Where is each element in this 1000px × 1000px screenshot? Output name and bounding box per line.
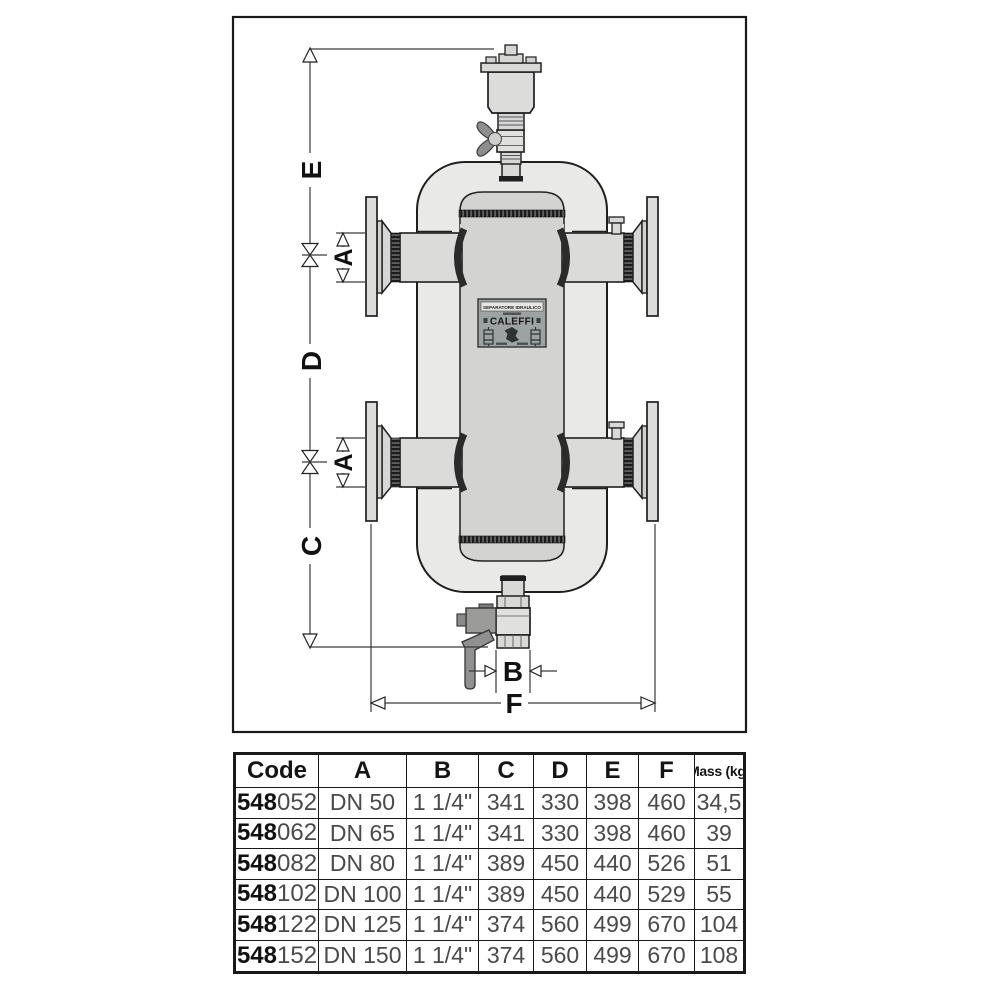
value-cell: 670 (639, 941, 695, 972)
spec-table: Code A B C D E F Mass (kg) 548052 DN 50 … (233, 752, 746, 974)
value-cell: DN 125 (319, 910, 407, 941)
value-cell: 374 (479, 910, 534, 941)
code-suffix: 052 (277, 789, 317, 817)
value-cell: 51 (695, 849, 743, 880)
value-cell: 526 (639, 849, 695, 880)
value-cell: 1 1/4" (407, 880, 479, 911)
nozzle-pipe (400, 438, 462, 487)
separator-vessel (417, 162, 607, 592)
drain-weld-band (500, 576, 526, 581)
value-cell: 670 (639, 910, 695, 941)
dim-label-B: B (503, 656, 523, 687)
nozzle-cone (382, 221, 391, 293)
vent-stem (505, 45, 517, 55)
col-header-d: D (534, 755, 587, 788)
nozzle-pipe (562, 438, 624, 487)
col-header-f: F (639, 755, 695, 788)
nozzle-cone (382, 426, 391, 498)
col-header-code: Code (236, 755, 319, 788)
plate-subline (503, 313, 521, 315)
code-prefix: 548 (237, 942, 277, 970)
value-cell: 450 (534, 880, 587, 911)
code-suffix: 102 (277, 880, 317, 908)
dim-label-F: F (505, 688, 522, 719)
plug-fitting (609, 217, 624, 223)
vent-thread (498, 113, 524, 130)
drain-valve-body (496, 608, 530, 635)
value-cell: 104 (695, 910, 743, 941)
value-cell: 440 (587, 880, 639, 911)
flange-bolt-right (526, 57, 536, 63)
value-cell: 1 1/4" (407, 849, 479, 880)
value-cell: 389 (479, 880, 534, 911)
value-cell: DN 150 (319, 941, 407, 972)
code-suffix: 152 (277, 942, 317, 970)
value-cell: 398 (587, 819, 639, 850)
value-cell: 330 (534, 819, 587, 850)
value-cell: 39 (695, 819, 743, 850)
value-cell: DN 80 (319, 849, 407, 880)
code-suffix: 122 (277, 911, 317, 939)
value-cell: 108 (695, 941, 743, 972)
code-suffix: 082 (277, 850, 317, 878)
nozzle-weld-band (391, 233, 400, 282)
value-cell: 34,5 (695, 788, 743, 819)
code-prefix: 548 (237, 850, 277, 878)
code-cell: 548082 (236, 849, 319, 880)
plate-mark-left (484, 318, 488, 323)
tank-tube (460, 224, 564, 537)
dim-label-D: D (296, 351, 327, 371)
plug-fitting-body (612, 223, 621, 234)
dim-label-E: E (296, 161, 327, 180)
code-cell: 548122 (236, 910, 319, 941)
plate-brand: CALEFFI (490, 317, 534, 328)
col-header-a: A (319, 755, 407, 788)
value-cell: 560 (534, 910, 587, 941)
code-cell: 548052 (236, 788, 319, 819)
dim-label-C: C (296, 536, 327, 556)
value-cell: 398 (587, 788, 639, 819)
nozzle-pipe (400, 233, 462, 282)
value-cell: 389 (479, 849, 534, 880)
air-vent-body (488, 72, 534, 113)
col-header-b: B (407, 755, 479, 788)
weld-seam-bottom (459, 536, 565, 543)
value-cell: 460 (639, 819, 695, 850)
code-prefix: 548 (237, 880, 277, 908)
flange-plate (366, 197, 377, 316)
dim-label-A-lower: A (330, 453, 358, 471)
value-cell: 1 1/4" (407, 788, 479, 819)
handle-hub (489, 133, 502, 146)
mount-bolt (457, 614, 466, 626)
value-cell: 450 (534, 849, 587, 880)
code-suffix: 062 (277, 819, 317, 847)
nozzle-pipe (562, 233, 624, 282)
plug-fitting-body (612, 428, 621, 439)
nozzle-cone (633, 221, 642, 293)
nozzle-weld-band (624, 233, 633, 282)
code-prefix: 548 (237, 819, 277, 847)
plate-text-bar-right (517, 343, 528, 345)
value-cell: 374 (479, 941, 534, 972)
air-vent-flange (481, 63, 541, 72)
col-header-c: C (479, 755, 534, 788)
col-header-mass: Mass (kg) (695, 755, 743, 788)
col-header-e: E (587, 755, 639, 788)
value-cell: 330 (534, 788, 587, 819)
value-cell: 560 (534, 941, 587, 972)
flange-plate (647, 197, 658, 316)
lever-mount (466, 608, 496, 633)
value-cell: 499 (587, 941, 639, 972)
drain-hex-adapter (497, 596, 529, 608)
code-cell: 548102 (236, 880, 319, 911)
label-plate: SEPARATORE IDRAULICO CALEFFI (478, 299, 546, 347)
flange-plate (647, 402, 658, 521)
value-cell: DN 65 (319, 819, 407, 850)
value-cell: 341 (479, 819, 534, 850)
plate-title: SEPARATORE IDRAULICO (483, 305, 541, 310)
code-prefix: 548 (237, 789, 277, 817)
value-cell: DN 100 (319, 880, 407, 911)
value-cell: 499 (587, 910, 639, 941)
code-cell: 548062 (236, 819, 319, 850)
code-prefix: 548 (237, 911, 277, 939)
value-cell: 55 (695, 880, 743, 911)
dim-label-A-upper: A (330, 248, 358, 266)
code-cell: 548152 (236, 941, 319, 972)
value-cell: 460 (639, 788, 695, 819)
weld-seam-top (459, 210, 565, 217)
value-cell: 341 (479, 788, 534, 819)
nozzle-weld-band (391, 438, 400, 487)
plug-fitting (609, 422, 624, 428)
flange-plate (366, 402, 377, 521)
plate-mark-right (537, 318, 541, 323)
value-cell: 1 1/4" (407, 910, 479, 941)
nozzle-cone (633, 426, 642, 498)
flange-bolt-left (486, 57, 496, 63)
value-cell: 529 (639, 880, 695, 911)
pipe-weld-band (499, 176, 523, 182)
tank-bottom-head (460, 542, 564, 561)
value-cell: DN 50 (319, 788, 407, 819)
nozzle-weld-band (624, 438, 633, 487)
value-cell: 1 1/4" (407, 941, 479, 972)
page: { "diagram": { "dims": { "E": "E", "D": … (0, 0, 1000, 1000)
plate-text-bar-left (496, 343, 507, 345)
value-cell: 440 (587, 849, 639, 880)
value-cell: 1 1/4" (407, 819, 479, 850)
vent-pipe-thread (501, 152, 521, 164)
